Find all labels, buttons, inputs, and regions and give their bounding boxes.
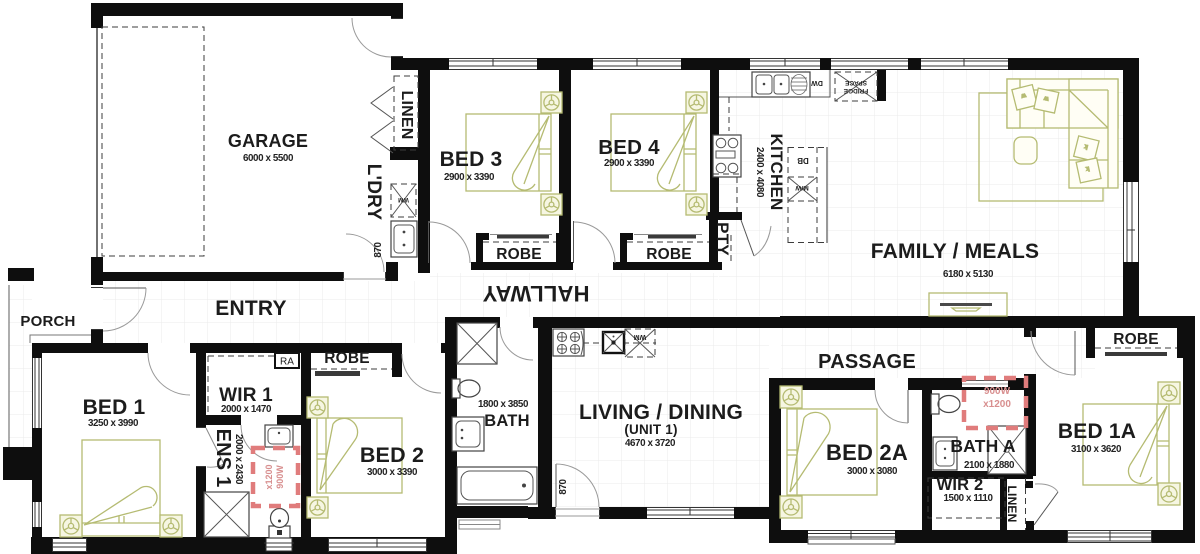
svg-text:2000 x 2430: 2000 x 2430 — [233, 434, 244, 485]
svg-text:DW: DW — [811, 79, 823, 86]
svg-text:BED 3: BED 3 — [440, 148, 503, 171]
svg-text:900W: 900W — [275, 465, 285, 489]
svg-text:RA: RA — [280, 357, 294, 368]
svg-text:WM: WM — [398, 196, 409, 202]
svg-text:FAMILY / MEALS: FAMILY / MEALS — [871, 240, 1040, 263]
svg-text:BED 2A: BED 2A — [826, 440, 908, 465]
svg-text:ROBE: ROBE — [496, 246, 542, 263]
svg-text:BED 1A: BED 1A — [1058, 420, 1136, 443]
svg-text:ROBE: ROBE — [1113, 331, 1159, 348]
svg-text:M/W: M/W — [794, 184, 808, 191]
svg-text:870: 870 — [558, 478, 569, 494]
svg-text:4670 x 3720: 4670 x 3720 — [625, 438, 676, 449]
svg-text:1500 x 1110: 1500 x 1110 — [944, 493, 994, 504]
svg-text:3000 x 3390: 3000 x 3390 — [367, 467, 418, 478]
svg-text:2000 x 1470: 2000 x 1470 — [221, 404, 272, 415]
svg-text:LIVING / DINING: LIVING / DINING — [579, 401, 743, 424]
svg-text:3250 x 3990: 3250 x 3990 — [88, 418, 139, 429]
svg-text:LINEN: LINEN — [398, 91, 415, 140]
svg-text:6180 x 5130: 6180 x 5130 — [943, 269, 994, 280]
svg-text:2900 x 3390: 2900 x 3390 — [604, 158, 655, 169]
svg-text:6000 x 5500: 6000 x 5500 — [243, 153, 294, 164]
svg-text:2100 x 1880: 2100 x 1880 — [964, 460, 1015, 471]
svg-text:3100 x 3620: 3100 x 3620 — [1071, 444, 1122, 455]
svg-text:FRIDGE: FRIDGE — [843, 87, 868, 94]
svg-text:(UNIT 1): (UNIT 1) — [624, 422, 677, 437]
svg-text:WM: WM — [634, 333, 647, 340]
svg-text:BED 2: BED 2 — [360, 443, 424, 467]
svg-text:BATH: BATH — [484, 412, 529, 430]
svg-text:1800 x 3850: 1800 x 3850 — [478, 399, 529, 410]
svg-text:x1200: x1200 — [264, 464, 274, 489]
svg-text:KITCHEN: KITCHEN — [767, 134, 786, 211]
svg-text:ROBE: ROBE — [324, 350, 370, 367]
svg-text:BED 1: BED 1 — [83, 396, 146, 419]
svg-text:PASSAGE: PASSAGE — [818, 351, 916, 373]
svg-text:x1200: x1200 — [983, 399, 1011, 410]
svg-text:LINEN: LINEN — [1005, 486, 1019, 523]
svg-text:2400 x 4080: 2400 x 4080 — [754, 147, 765, 198]
svg-text:DB: DB — [797, 156, 809, 165]
svg-text:3000 x 3080: 3000 x 3080 — [847, 466, 898, 477]
svg-text:ENTRY: ENTRY — [215, 297, 286, 320]
svg-text:WIR 2: WIR 2 — [937, 476, 984, 494]
svg-text:PTY: PTY — [713, 222, 732, 256]
svg-text:SPACE: SPACE — [844, 79, 867, 86]
svg-text:GARAGE: GARAGE — [228, 131, 308, 151]
svg-text:870: 870 — [373, 241, 384, 257]
svg-text:PORCH: PORCH — [20, 313, 75, 330]
svg-text:ENS 1: ENS 1 — [212, 429, 234, 488]
svg-text:L'DRY: L'DRY — [363, 164, 384, 221]
svg-text:900W: 900W — [984, 386, 1011, 397]
svg-text:2900 x 3390: 2900 x 3390 — [444, 172, 495, 183]
svg-text:BED 4: BED 4 — [598, 136, 660, 159]
svg-text:ROBE: ROBE — [646, 246, 692, 263]
svg-text:HALLWAY: HALLWAY — [482, 281, 589, 306]
svg-text:BATH A: BATH A — [950, 436, 1016, 456]
svg-text:WIR 1: WIR 1 — [219, 385, 273, 406]
